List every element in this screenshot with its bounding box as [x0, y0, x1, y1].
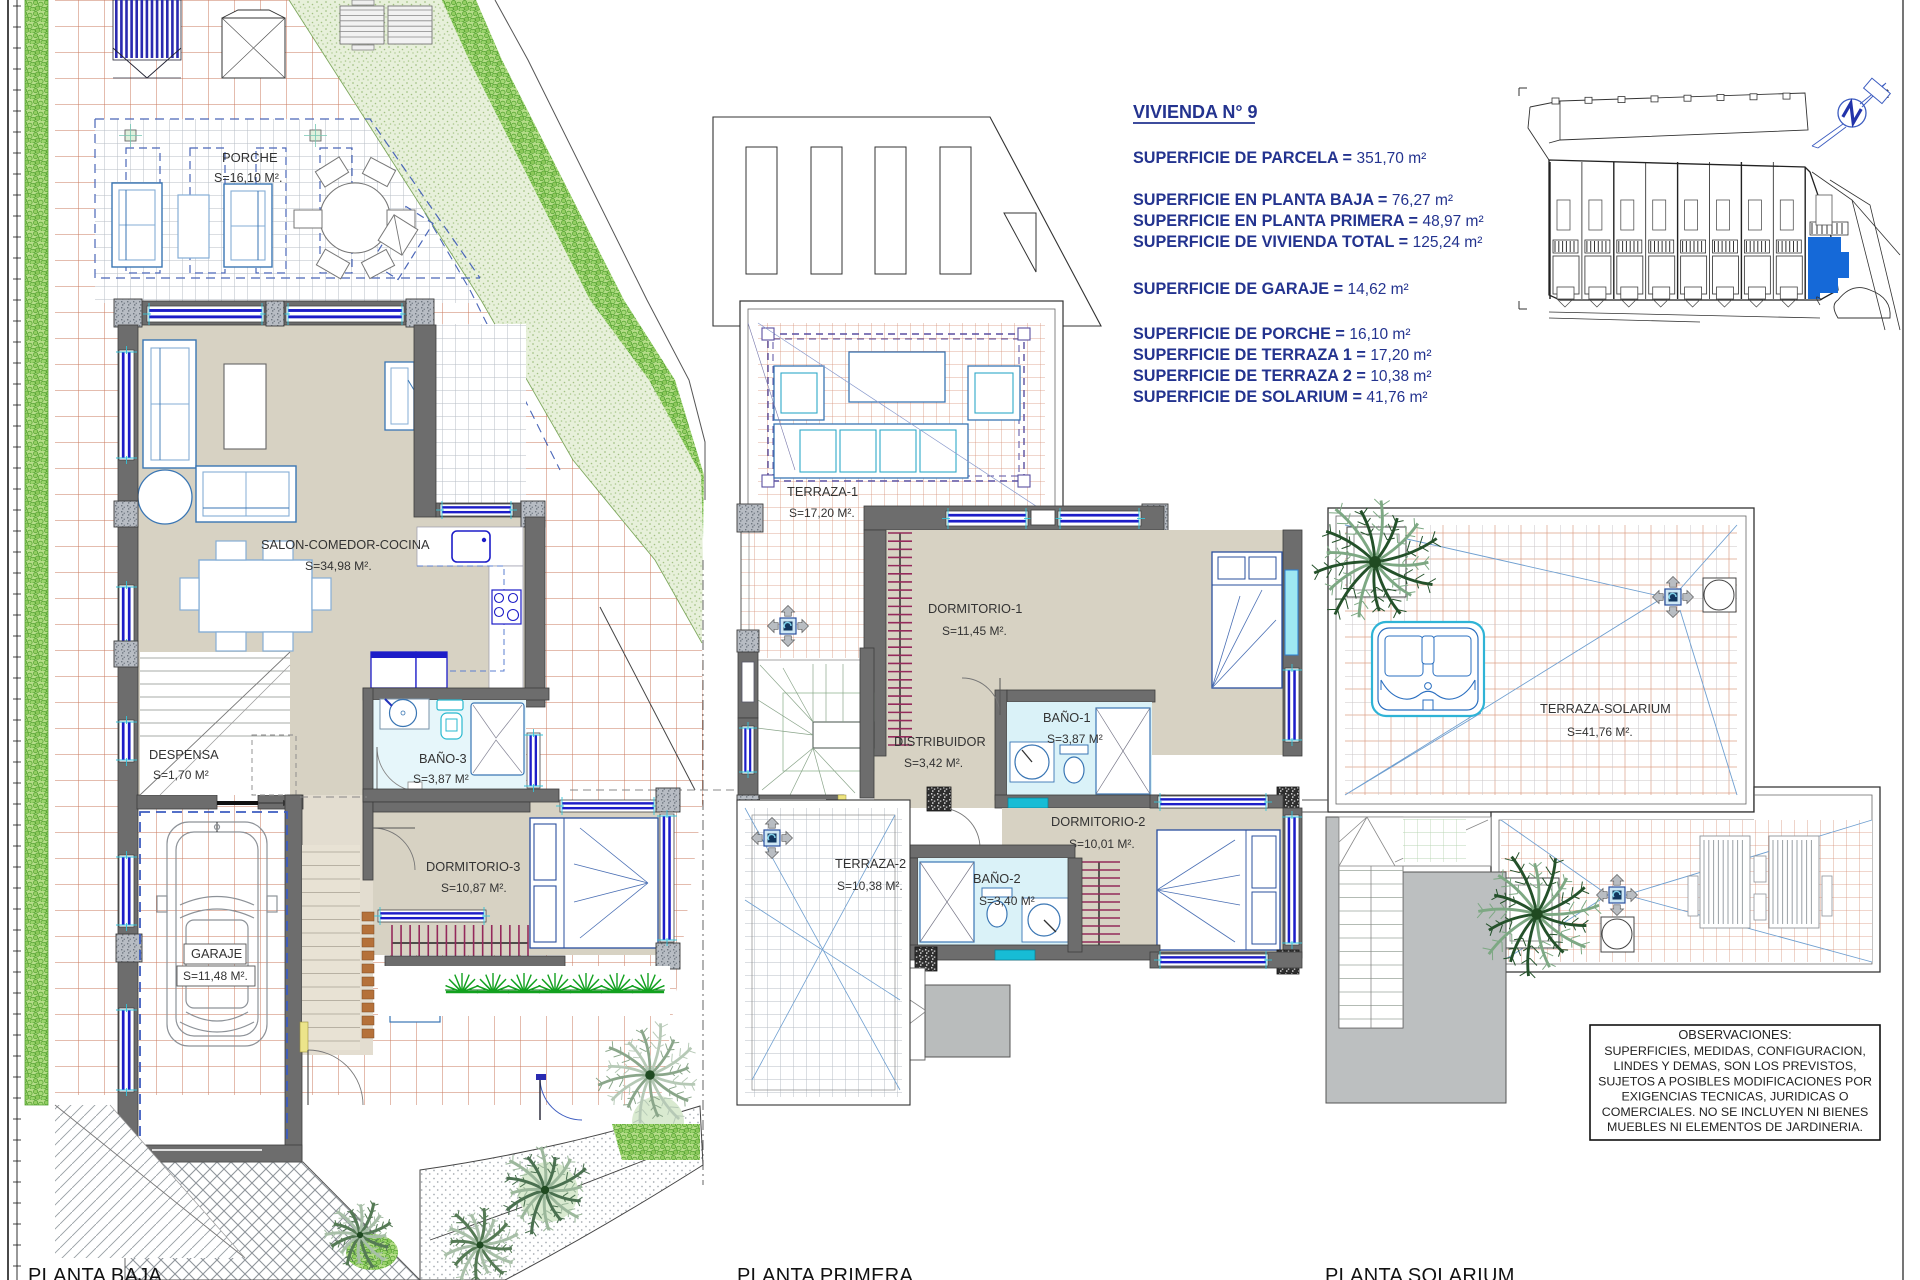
svg-text:VIVIENDA N° 9: VIVIENDA N° 9	[1133, 102, 1258, 122]
svg-text:SUPERFICIE DE PARCELA = 351,70: SUPERFICIE DE PARCELA = 351,70 m²	[1133, 149, 1426, 167]
svg-text:S=3,40 M²: S=3,40 M²	[979, 894, 1035, 908]
svg-text:S=10,01 M².: S=10,01 M².	[1069, 837, 1135, 851]
svg-text:BAÑO-2: BAÑO-2	[973, 871, 1021, 886]
svg-text:S=34,98 M².: S=34,98 M².	[305, 559, 372, 573]
svg-text:DISTRIBUIDOR: DISTRIBUIDOR	[894, 734, 986, 749]
svg-text:S=10,87 M².: S=10,87 M².	[441, 881, 507, 895]
svg-text:TERRAZA-2: TERRAZA-2	[835, 856, 906, 871]
svg-text:SUPERFICIE DE PORCHE = 16,10 m: SUPERFICIE DE PORCHE = 16,10 m²	[1133, 325, 1411, 343]
svg-text:S=1,70 M²: S=1,70 M²	[153, 768, 209, 782]
svg-text:S=16,10 M².: S=16,10 M².	[214, 171, 282, 185]
svg-text:S=10,38 M².: S=10,38 M².	[837, 879, 903, 893]
svg-text:S=41,76 M².: S=41,76 M².	[1567, 725, 1633, 739]
svg-text:PLANTA BAJA: PLANTA BAJA	[28, 1265, 162, 1280]
svg-text:COMERCIALES. NO SE INCLUYEN NI: COMERCIALES. NO SE INCLUYEN NI BIENES	[1602, 1105, 1868, 1119]
svg-text:SALON-COMEDOR-COCINA: SALON-COMEDOR-COCINA	[261, 537, 430, 552]
svg-text:SUPERFICIE DE SOLARIUM = 41,76: SUPERFICIE DE SOLARIUM = 41,76 m²	[1133, 388, 1428, 406]
svg-text:EXIGENCIAS TECNICAS, JURIDICAS: EXIGENCIAS TECNICAS, JURIDICAS O	[1622, 1090, 1849, 1104]
svg-text:DESPENSA: DESPENSA	[149, 747, 219, 762]
svg-text:SUPERFICIE DE TERRAZA 2 = 10,3: SUPERFICIE DE TERRAZA 2 = 10,38 m²	[1133, 367, 1431, 385]
svg-text:S=3,42 M².: S=3,42 M².	[904, 756, 963, 770]
svg-text:TERRAZA-SOLARIUM: TERRAZA-SOLARIUM	[1540, 701, 1671, 716]
svg-text:BAÑO-1: BAÑO-1	[1043, 710, 1091, 725]
svg-text:PLANTA PRIMERA: PLANTA PRIMERA	[737, 1265, 913, 1280]
svg-text:PLANTA SOLARIUM: PLANTA SOLARIUM	[1325, 1265, 1515, 1280]
svg-text:SUPERFICIE EN PLANTA PRIMERA =: SUPERFICIE EN PLANTA PRIMERA = 48,97 m²	[1133, 212, 1484, 230]
svg-text:S=3,87 M²: S=3,87 M²	[413, 772, 469, 786]
svg-text:GARAJE: GARAJE	[191, 946, 242, 961]
svg-text:S=17,20 M².: S=17,20 M².	[789, 506, 855, 520]
svg-text:DORMITORIO-2: DORMITORIO-2	[1051, 814, 1145, 829]
svg-text:MUEBLES NI ELEMENTOS DE JARDIN: MUEBLES NI ELEMENTOS DE JARDINERIA.	[1607, 1120, 1863, 1134]
svg-text:OBSERVACIONES:: OBSERVACIONES:	[1678, 1027, 1791, 1042]
svg-text:SUJETOS A POSIBLES MODIFICACIO: SUJETOS A POSIBLES MODIFICACIONES POR	[1598, 1074, 1872, 1088]
svg-text:SUPERFICIE DE GARAJE = 14,62 m: SUPERFICIE DE GARAJE = 14,62 m²	[1133, 280, 1409, 298]
svg-text:SUPERFICIES, MEDIDAS, CONFIGUR: SUPERFICIES, MEDIDAS, CONFIGURACION,	[1604, 1044, 1866, 1058]
svg-text:S=11,48 M².: S=11,48 M².	[183, 969, 248, 983]
svg-text:PORCHE: PORCHE	[222, 150, 278, 165]
svg-text:DORMITORIO-3: DORMITORIO-3	[426, 859, 520, 874]
svg-text:SUPERFICIE DE VIVIENDA TOTAL =: SUPERFICIE DE VIVIENDA TOTAL = 125,24 m²	[1133, 233, 1482, 251]
svg-text:BAÑO-3: BAÑO-3	[419, 751, 467, 766]
svg-text:LINDES Y DEMAS, SON LOS PREVIS: LINDES Y DEMAS, SON LOS PREVISTOS,	[1613, 1059, 1856, 1073]
svg-text:SUPERFICIE EN PLANTA BAJA = 76: SUPERFICIE EN PLANTA BAJA = 76,27 m²	[1133, 191, 1453, 209]
svg-text:DORMITORIO-1: DORMITORIO-1	[928, 601, 1022, 616]
svg-text:SUPERFICIE DE TERRAZA 1 = 17,2: SUPERFICIE DE TERRAZA 1 = 17,20 m²	[1133, 346, 1431, 364]
svg-text:S=11,45 M².: S=11,45 M².	[942, 624, 1007, 638]
svg-text:S=3,87 M²: S=3,87 M²	[1047, 732, 1103, 746]
svg-text:TERRAZA-1: TERRAZA-1	[787, 484, 858, 499]
